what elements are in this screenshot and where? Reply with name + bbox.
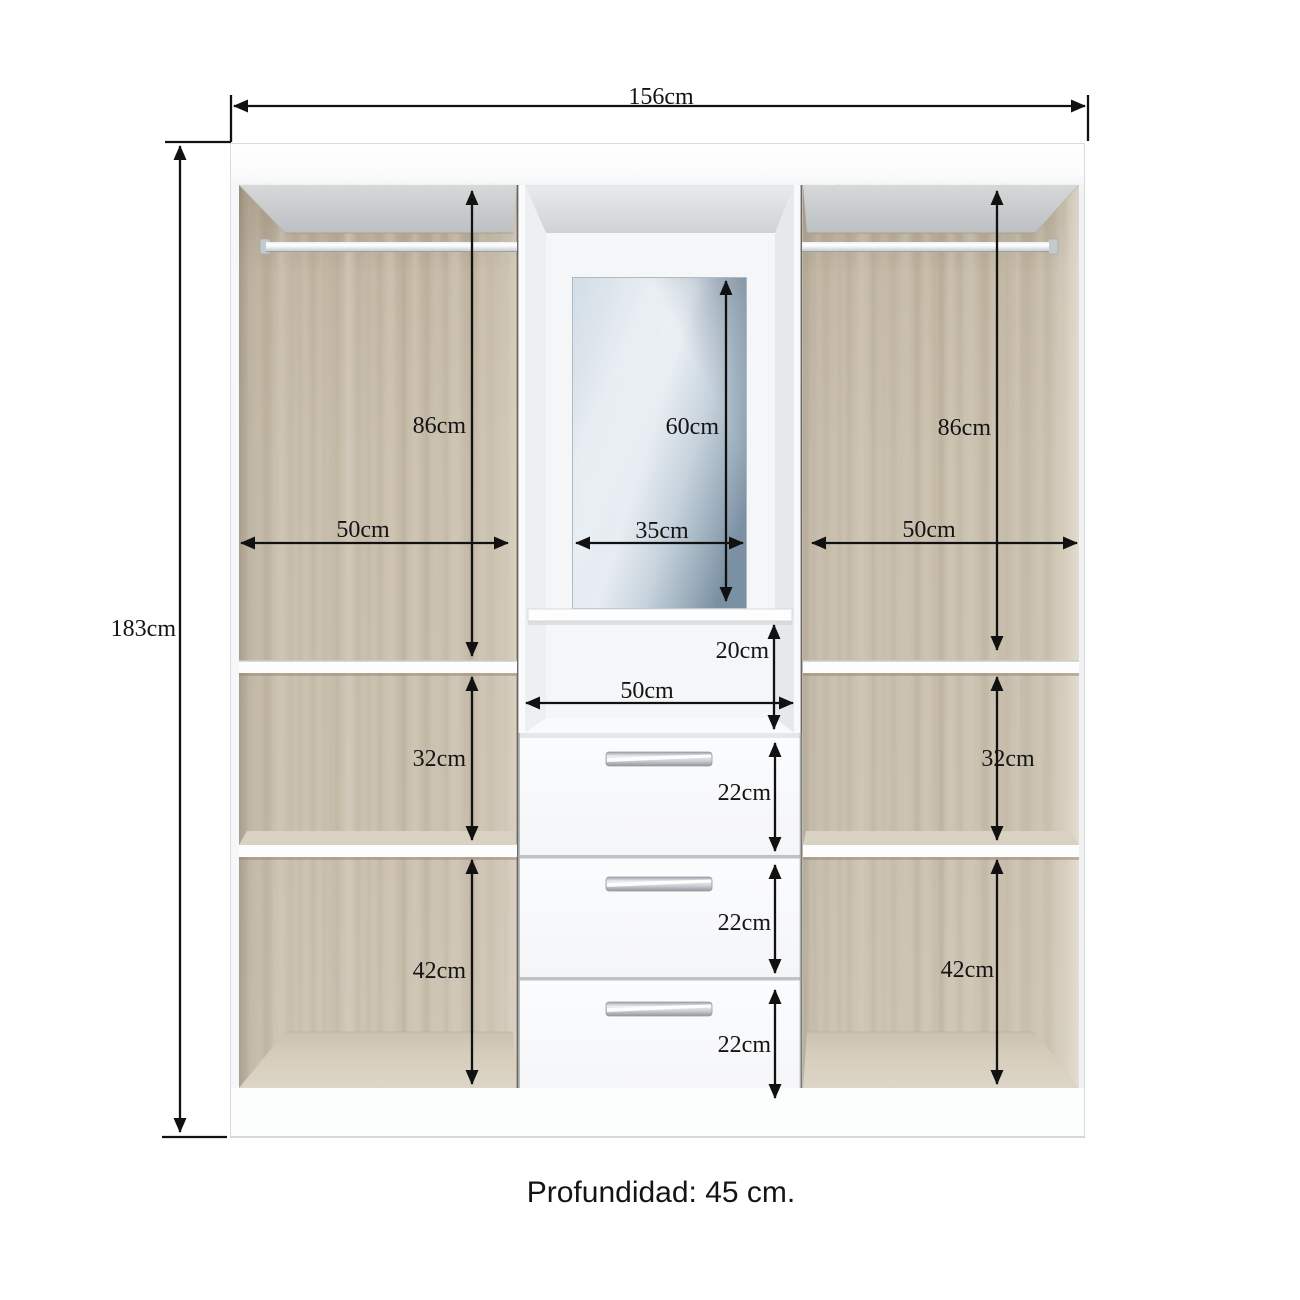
svg-text:Profundidad: 45 cm.: Profundidad: 45 cm.: [527, 1176, 796, 1209]
svg-text:86cm: 86cm: [413, 413, 467, 439]
svg-text:32cm: 32cm: [981, 746, 1035, 772]
svg-text:22cm: 22cm: [718, 780, 772, 806]
svg-text:50cm: 50cm: [336, 517, 390, 543]
svg-text:22cm: 22cm: [718, 1032, 772, 1058]
svg-text:42cm: 42cm: [941, 957, 995, 983]
svg-text:183cm: 183cm: [111, 616, 177, 642]
svg-text:35cm: 35cm: [635, 518, 689, 544]
svg-text:50cm: 50cm: [620, 678, 674, 704]
svg-text:86cm: 86cm: [938, 415, 992, 441]
svg-text:22cm: 22cm: [718, 910, 772, 936]
svg-text:50cm: 50cm: [902, 517, 956, 543]
svg-text:32cm: 32cm: [413, 746, 467, 772]
svg-text:60cm: 60cm: [666, 414, 720, 440]
svg-text:20cm: 20cm: [716, 638, 770, 664]
svg-text:42cm: 42cm: [413, 958, 467, 984]
svg-text:156cm: 156cm: [628, 84, 694, 110]
